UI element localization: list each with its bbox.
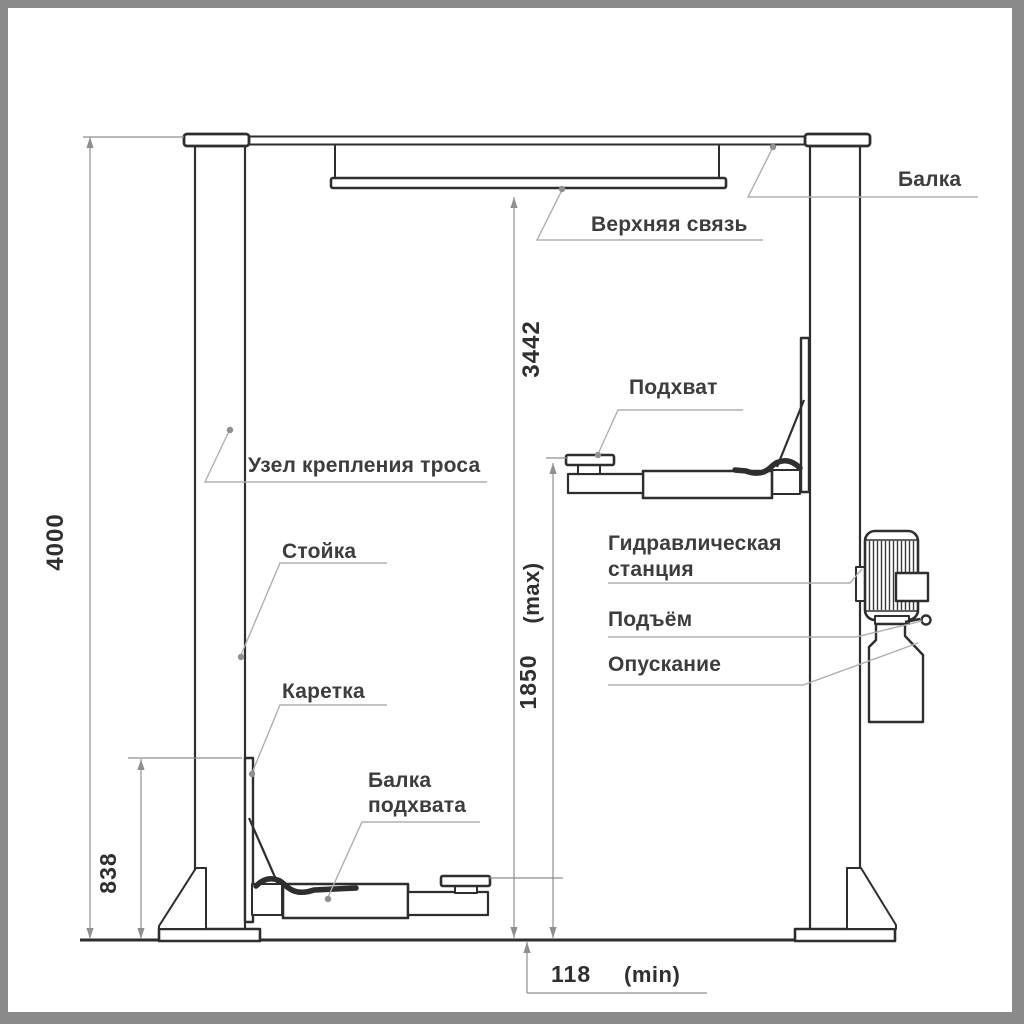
label-hydraulic-line1: Гидравлическая: [608, 532, 782, 555]
dim-118: 118: [551, 961, 591, 987]
upper-tie-bar: [331, 178, 726, 188]
dim-1850: 1850: [515, 654, 541, 709]
label-upper-tie: Верхняя связь: [591, 213, 748, 236]
right-arm-telescope: [568, 474, 643, 493]
leader-dot: [595, 452, 601, 458]
screenshot-frame: Балка Верхняя связь Подхват Узел креплен…: [0, 0, 1024, 1024]
leader-dot: [325, 896, 331, 902]
left-pickup-pad: [441, 876, 490, 886]
label-hydraulic-line2: станция: [608, 558, 694, 581]
motor-junction-box: [896, 573, 928, 601]
right-post-cap: [805, 134, 870, 146]
label-pickup-pad: Подхват: [629, 376, 718, 399]
dim-max-suffix: (max): [519, 562, 544, 623]
dim-4000: 4000: [42, 513, 69, 570]
label-pickup-beam-line1: Балка: [368, 769, 431, 792]
label-beam: Балка: [898, 168, 961, 191]
label-cable-mount: Узел крепления троса: [248, 454, 481, 477]
lift-technical-diagram: Балка Верхняя связь Подхват Узел креплен…: [0, 0, 1024, 1024]
leader-dot: [249, 771, 255, 777]
label-pickup-beam-line2: подхвата: [368, 794, 466, 817]
left-arm-telescope: [408, 892, 488, 915]
dim-min-suffix: (min): [624, 962, 680, 987]
right-base-plate: [795, 929, 895, 941]
left-post: [195, 146, 245, 930]
left-base-plate: [159, 929, 260, 941]
right-post: [810, 146, 860, 930]
leader-dot: [227, 427, 233, 433]
label-carriage: Каретка: [282, 680, 365, 703]
dim-838: 838: [95, 852, 121, 893]
label-post: Стойка: [282, 540, 356, 563]
right-arm-bracket: [772, 470, 800, 494]
dim-3442: 3442: [518, 320, 545, 377]
leader-dot: [238, 654, 244, 660]
left-post-cap: [184, 134, 249, 146]
leader-dot: [559, 186, 565, 192]
right-pickup-pad: [566, 455, 614, 465]
leader-dot: [770, 144, 776, 150]
paper-background: [8, 8, 1012, 1012]
label-lowering: Опускание: [608, 653, 721, 676]
label-raise: Подъём: [608, 608, 692, 631]
release-handle-knob: [922, 616, 931, 625]
